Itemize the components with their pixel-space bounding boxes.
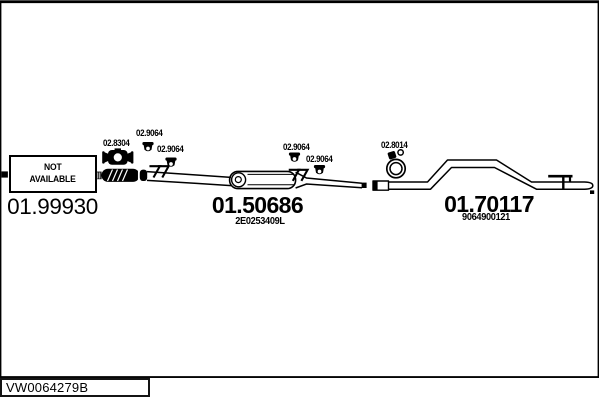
flange-clamp-icon: [102, 148, 133, 164]
rubber-hanger-icon-3: [289, 153, 300, 162]
part-number-center-muffler[interactable]: 01.50686: [208, 194, 308, 217]
front-pipe-stub: [2, 171, 8, 177]
rubber-hanger-icon-4: [314, 165, 325, 174]
oem-number-center-muffler: 2E0253409L: [214, 217, 306, 227]
ring-clamp-icon: [387, 150, 405, 178]
not-available-line2: AVAILABLE: [30, 175, 76, 186]
fitting-label-02-9064-2[interactable]: 02.9064: [157, 145, 183, 155]
exhaust-diagram-page: NOT AVAILABLE 02.8304 02.9064 02.9064 02…: [0, 0, 600, 400]
diagram-code: VW0064279B: [6, 381, 88, 394]
fitting-label-02-9064-1[interactable]: 02.9064: [136, 129, 162, 139]
part-number-front-section[interactable]: 01.99930: [3, 196, 103, 219]
tail-pipe-tip-marker: [590, 190, 594, 194]
mid-pipe-end-connector: [362, 183, 367, 188]
intermediate-pipe-drawing: [147, 172, 231, 186]
fitting-label-02-9064-4[interactable]: 02.9064: [306, 155, 332, 165]
fitting-label-02-9064-3[interactable]: 02.9064: [283, 143, 309, 153]
not-available-box: NOT AVAILABLE: [9, 155, 97, 193]
not-available-line1: NOT: [44, 163, 62, 174]
fitting-label-02-8304[interactable]: 02.8304: [103, 139, 129, 149]
diagram-code-box: VW0064279B: [0, 378, 150, 397]
oem-number-rear-pipe: 9064900121: [440, 213, 532, 223]
flex-pipe-drawing: [96, 168, 147, 182]
rubber-hanger-icon-1: [142, 142, 153, 151]
fitting-label-02-8014[interactable]: 02.8014: [381, 141, 407, 151]
